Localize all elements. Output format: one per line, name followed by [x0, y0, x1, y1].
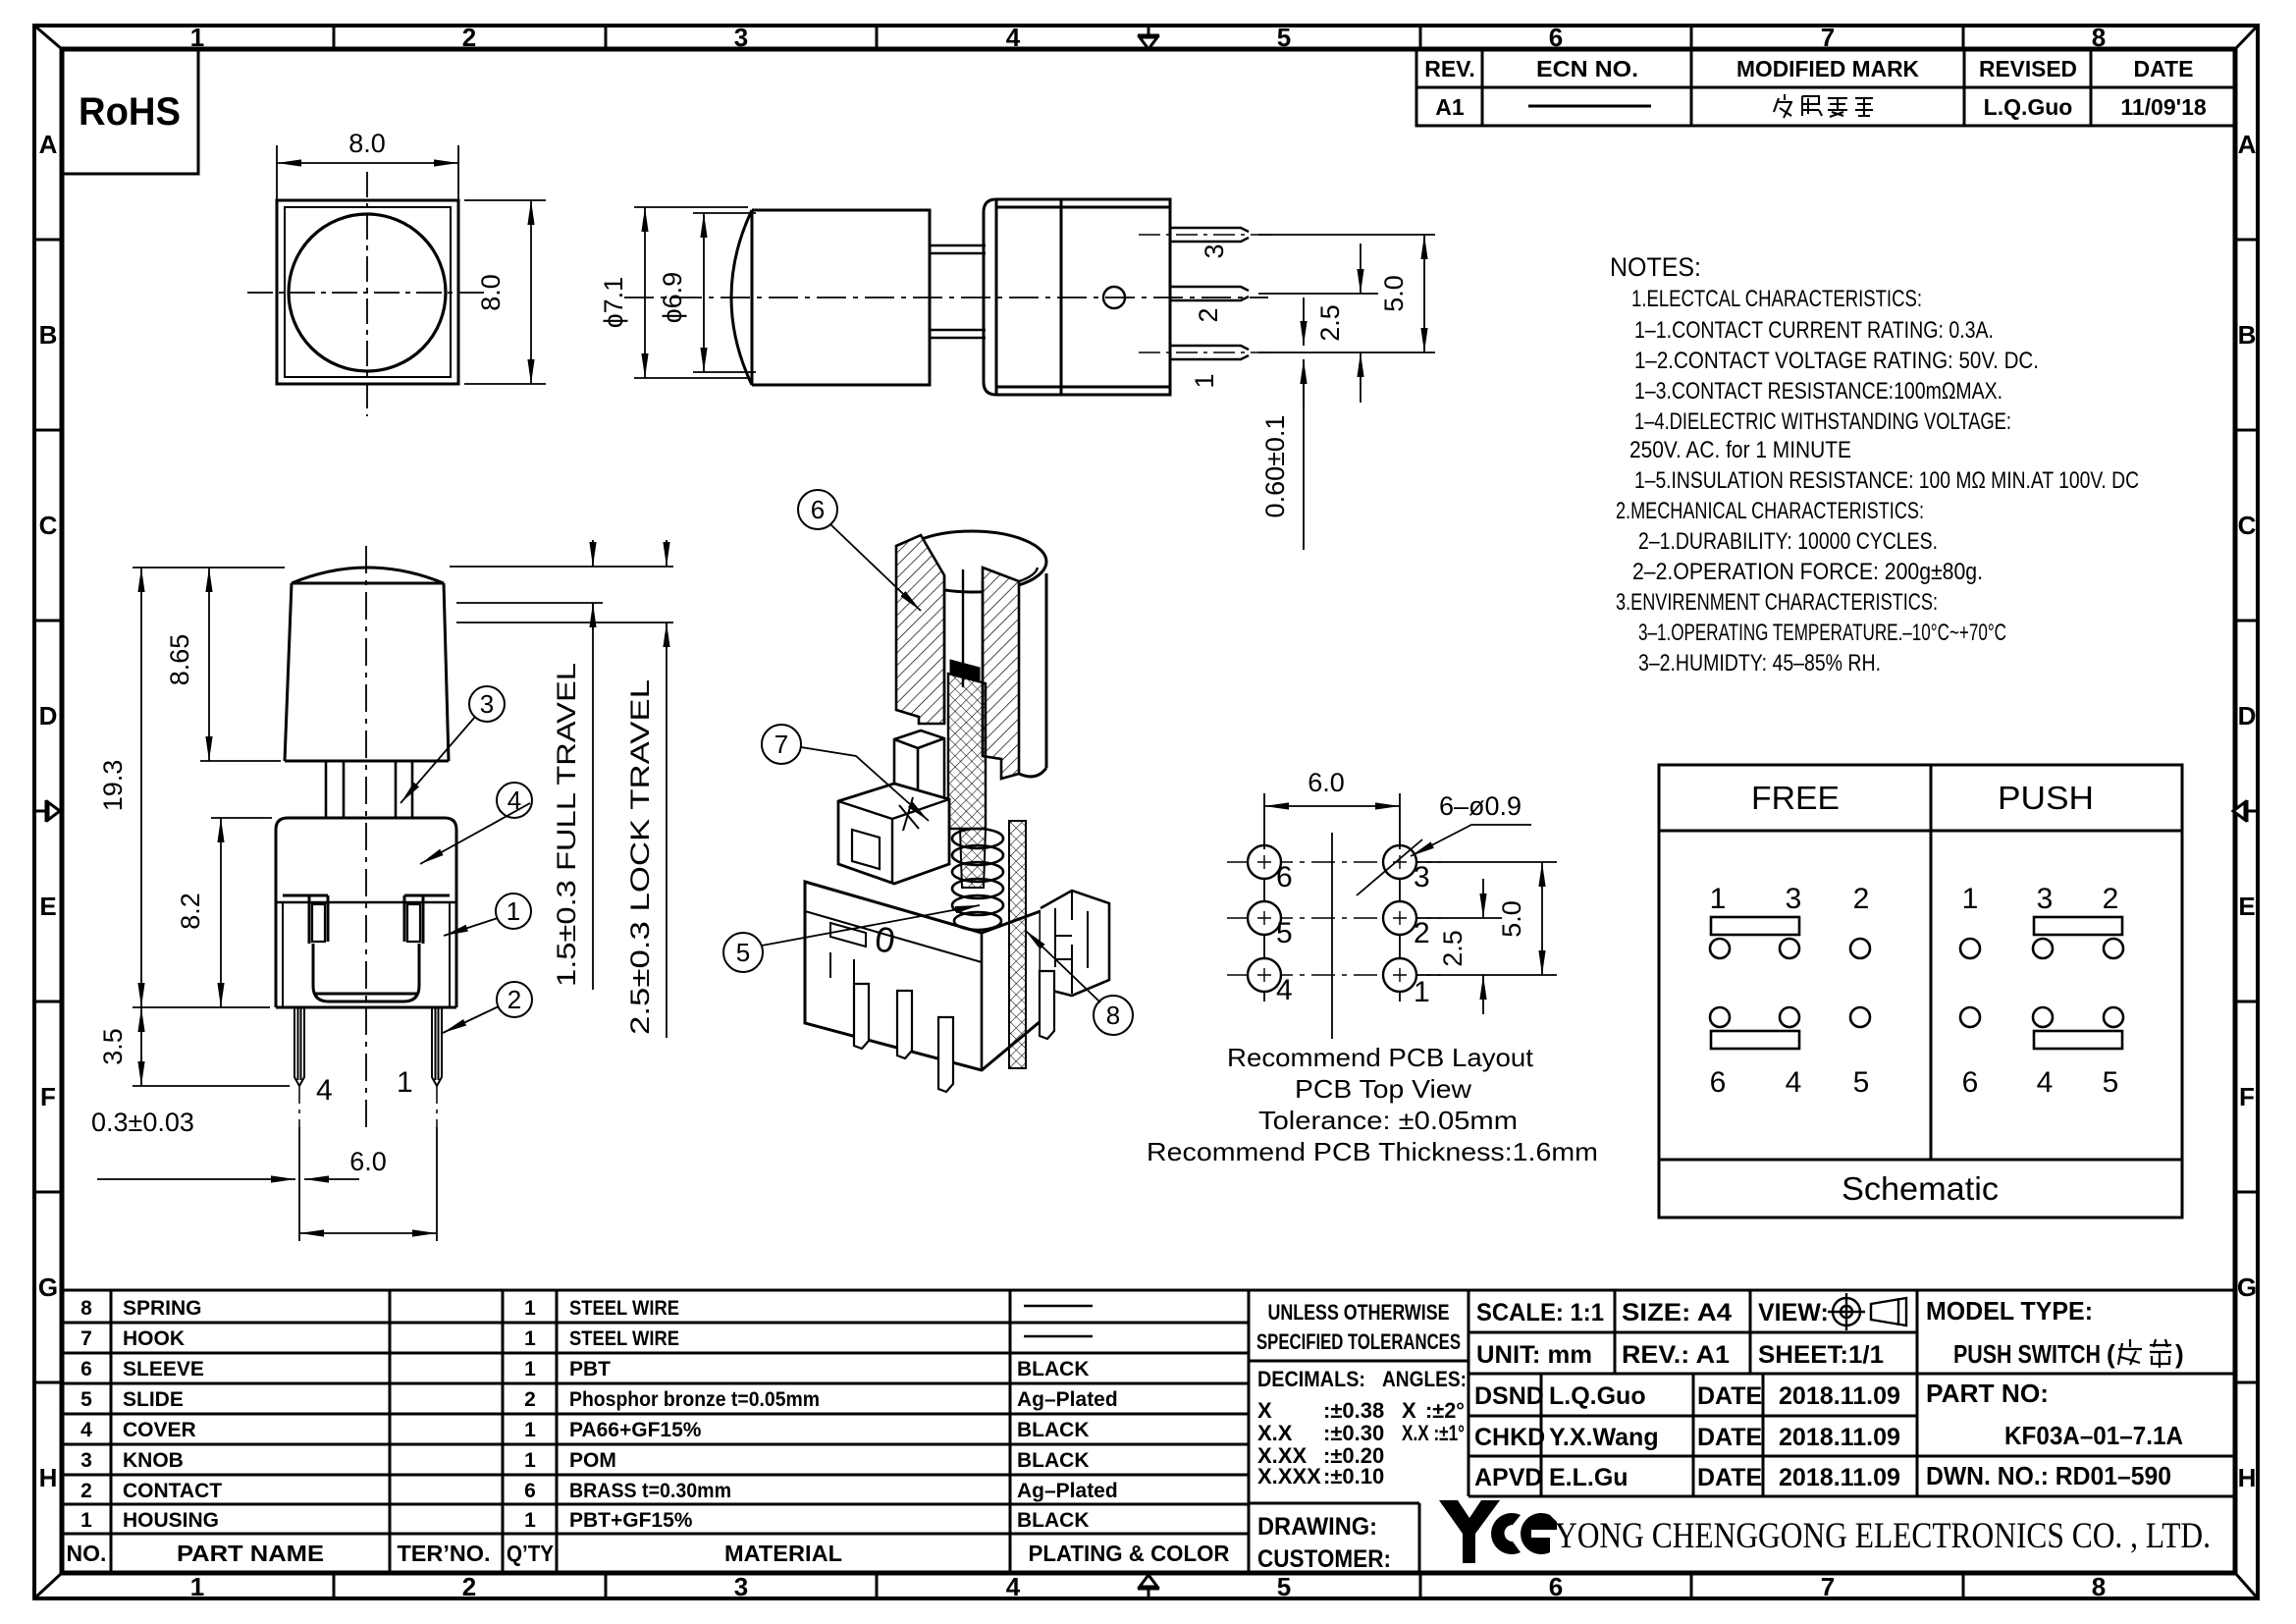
svg-text:X: X — [1257, 1398, 1272, 1423]
svg-text:3: 3 — [480, 689, 494, 719]
svg-text:X.XXX: X.XXX — [1257, 1464, 1321, 1489]
svg-text:PART NAME: PART NAME — [177, 1541, 324, 1566]
svg-text:1: 1 — [1190, 373, 1219, 388]
svg-text:Q’TY: Q’TY — [507, 1541, 554, 1566]
svg-text:4: 4 — [1006, 23, 1021, 52]
svg-text:1: 1 — [524, 1327, 536, 1350]
svg-text:RoHS: RoHS — [79, 90, 181, 134]
svg-text:3–2.HUMIDTY: 45–85% RH.: 3–2.HUMIDTY: 45–85% RH. — [1638, 650, 1881, 677]
svg-text:F: F — [2239, 1082, 2255, 1111]
svg-text:4: 4 — [1276, 974, 1293, 1006]
svg-text:COVER: COVER — [123, 1419, 196, 1441]
svg-text:SHEET:1/1: SHEET:1/1 — [1758, 1341, 1884, 1369]
svg-text:PBT+GF15%: PBT+GF15% — [569, 1509, 693, 1532]
svg-text:5: 5 — [736, 938, 750, 967]
svg-text:2.5±0.3 LOCK TRAVEL: 2.5±0.3 LOCK TRAVEL — [625, 679, 655, 1035]
svg-text:1: 1 — [397, 1066, 413, 1099]
svg-text:5: 5 — [1277, 1572, 1291, 1601]
svg-text:DWN. NO.: RD01–590: DWN. NO.: RD01–590 — [1926, 1461, 2171, 1490]
svg-text:7: 7 — [80, 1327, 92, 1350]
svg-text:KNOB: KNOB — [123, 1449, 184, 1472]
svg-text:19.3: 19.3 — [98, 760, 128, 812]
svg-text:SPECIFIED TOLERANCES: SPECIFIED TOLERANCES — [1256, 1329, 1461, 1354]
svg-text:NOTES:: NOTES: — [1610, 252, 1701, 282]
svg-text:REV.: REV. — [1424, 56, 1475, 81]
svg-text:6.0: 6.0 — [1308, 768, 1345, 797]
svg-text::±0.10: :±0.10 — [1323, 1464, 1384, 1489]
svg-text:C: C — [39, 511, 58, 540]
svg-text:KF03A–01–7.1A: KF03A–01–7.1A — [2004, 1421, 2183, 1450]
svg-text:5: 5 — [1277, 23, 1291, 52]
svg-text:1: 1 — [1962, 883, 1979, 915]
svg-text:BLACK: BLACK — [1017, 1509, 1090, 1532]
svg-text:2: 2 — [1194, 307, 1223, 322]
svg-text:1.5±0.3 FULL TRAVEL: 1.5±0.3 FULL TRAVEL — [552, 663, 581, 987]
svg-text:5.0: 5.0 — [1497, 900, 1526, 938]
svg-text:4: 4 — [80, 1419, 92, 1441]
svg-text:FREE: FREE — [1751, 780, 1840, 816]
svg-text:2.MECHANICAL CHARACTERISTICS:: 2.MECHANICAL CHARACTERISTICS: — [1616, 498, 1924, 524]
svg-text:PCB Top View: PCB Top View — [1295, 1074, 1471, 1104]
svg-text:2018.11.09: 2018.11.09 — [1779, 1382, 1900, 1410]
svg-text:1: 1 — [524, 1449, 536, 1472]
svg-text:8.0: 8.0 — [348, 129, 386, 158]
svg-text:BLACK: BLACK — [1017, 1358, 1090, 1380]
svg-text:DATE: DATE — [1697, 1382, 1762, 1410]
svg-text:2: 2 — [2103, 883, 2119, 915]
svg-text:PUSH SWITCH: PUSH SWITCH — [1953, 1339, 2101, 1369]
svg-text:1–5.INSULATION RESISTANCE: 1: 1–5.INSULATION RESISTANCE: 100 MΩ MIN.AT… — [1634, 467, 2139, 494]
svg-text:DATE: DATE — [2134, 56, 2194, 81]
svg-text:1: 1 — [1710, 883, 1727, 915]
svg-text:BLACK: BLACK — [1017, 1449, 1090, 1472]
svg-text:STEEL WIRE: STEEL WIRE — [569, 1327, 679, 1350]
svg-text:3: 3 — [734, 23, 748, 52]
svg-text:3: 3 — [80, 1449, 92, 1472]
svg-text:A1: A1 — [1435, 94, 1465, 120]
svg-text:6: 6 — [1710, 1066, 1727, 1099]
svg-text:MODEL TYPE:: MODEL TYPE: — [1926, 1296, 2093, 1326]
svg-text:CHKD: CHKD — [1474, 1424, 1545, 1451]
svg-text:E: E — [39, 892, 56, 921]
svg-text:6: 6 — [1549, 1572, 1563, 1601]
svg-text:ɸ7.1: ɸ7.1 — [599, 277, 628, 328]
svg-text:Ag–Plated: Ag–Plated — [1017, 1388, 1118, 1411]
svg-text:5: 5 — [2103, 1066, 2119, 1099]
svg-text::±2°: :±2° — [1425, 1398, 1465, 1423]
svg-text:X.X: X.X — [1257, 1421, 1293, 1445]
svg-text:3.ENVIRENMENT CHARACTERISTICS: 3.ENVIRENMENT CHARACTERISTICS: — [1616, 589, 1938, 616]
svg-text:SPRING: SPRING — [123, 1297, 202, 1320]
svg-text:TER’NO.: TER’NO. — [398, 1541, 491, 1566]
svg-text:2: 2 — [462, 23, 476, 52]
svg-text:3: 3 — [1414, 861, 1430, 893]
svg-text:4: 4 — [2037, 1066, 2054, 1099]
svg-text:SLEEVE: SLEEVE — [123, 1358, 204, 1380]
svg-text:POM: POM — [569, 1449, 616, 1472]
svg-text:5: 5 — [1276, 917, 1293, 949]
svg-text:ECN NO.: ECN NO. — [1536, 56, 1638, 81]
svg-text:2018.11.09: 2018.11.09 — [1779, 1464, 1900, 1491]
svg-text:YONG CHENGGONG ELECTRONICS: YONG CHENGGONG ELECTRONICS CO. , LTD. — [1555, 1516, 2211, 1556]
svg-text:DRAWING:: DRAWING: — [1257, 1513, 1377, 1541]
svg-text:UNLESS OTHERWISE: UNLESS OTHERWISE — [1268, 1300, 1450, 1325]
svg-text:6: 6 — [524, 1480, 536, 1502]
svg-text:2018.11.09: 2018.11.09 — [1779, 1424, 1900, 1451]
svg-text:4: 4 — [507, 785, 521, 815]
svg-text:Recommend PCB Layout: Recommend PCB Layout — [1227, 1043, 1534, 1072]
svg-text:PART NO:: PART NO: — [1926, 1379, 2049, 1408]
svg-text::±0.30: :±0.30 — [1323, 1421, 1384, 1445]
svg-text:C: C — [2238, 511, 2257, 540]
svg-text:1–2.CONTACT VOLTAGE RATING:: 1–2.CONTACT VOLTAGE RATING: 50V. DC. — [1634, 348, 2039, 374]
svg-text:L.Q.Guo: L.Q.Guo — [1984, 94, 2073, 120]
svg-text:): ) — [2175, 1339, 2184, 1369]
svg-text:8.2: 8.2 — [176, 893, 205, 930]
svg-text:PUSH: PUSH — [1998, 780, 2094, 816]
svg-text:BRASS t=0.30mm: BRASS t=0.30mm — [569, 1480, 731, 1502]
svg-text:E: E — [2238, 892, 2255, 921]
svg-text:A: A — [39, 130, 58, 159]
svg-text:B: B — [39, 320, 58, 350]
svg-text:1: 1 — [524, 1297, 536, 1320]
svg-text:H: H — [2238, 1463, 2257, 1492]
svg-text:D: D — [2238, 701, 2257, 731]
svg-text:1.ELECTCAL CHARACTERISTICS:: 1.ELECTCAL CHARACTERISTICS: — [1631, 286, 1922, 312]
svg-text:H: H — [39, 1463, 58, 1492]
svg-text::±0.38: :±0.38 — [1323, 1398, 1384, 1423]
svg-text:Schematic: Schematic — [1842, 1170, 1999, 1207]
svg-text:0.60±0.1: 0.60±0.1 — [1260, 415, 1290, 518]
svg-text:SLIDE: SLIDE — [123, 1388, 184, 1411]
svg-text:REVISED: REVISED — [1979, 56, 2077, 81]
svg-text:2.5: 2.5 — [1315, 304, 1345, 342]
svg-text:A: A — [2238, 130, 2257, 159]
svg-text:SCALE: 1:1: SCALE: 1:1 — [1476, 1299, 1604, 1326]
svg-text:3: 3 — [2037, 883, 2054, 915]
svg-text:DATE: DATE — [1697, 1424, 1762, 1451]
svg-text:5: 5 — [1853, 1066, 1870, 1099]
svg-text:5: 5 — [80, 1388, 92, 1411]
svg-text:B: B — [2238, 320, 2257, 350]
svg-text:E.L.Gu: E.L.Gu — [1549, 1464, 1629, 1491]
svg-text:8: 8 — [1106, 1001, 1120, 1030]
svg-text:DSND: DSND — [1474, 1382, 1544, 1410]
svg-text:2: 2 — [507, 985, 521, 1014]
svg-text:2: 2 — [1853, 883, 1870, 915]
svg-text:1: 1 — [524, 1419, 536, 1441]
svg-text:3–1.OPERATING TEMPERATURE.–10: 3–1.OPERATING TEMPERATURE.–10°C~+70°C — [1638, 620, 2006, 646]
svg-text:6: 6 — [1276, 861, 1293, 893]
svg-text:BLACK: BLACK — [1017, 1419, 1090, 1441]
svg-text:1: 1 — [1414, 976, 1430, 1008]
svg-text:8.65: 8.65 — [165, 634, 194, 686]
svg-text:7: 7 — [1821, 1572, 1835, 1601]
svg-text:SIZE: A4: SIZE: A4 — [1622, 1299, 1732, 1326]
svg-text:STEEL WIRE: STEEL WIRE — [569, 1297, 679, 1320]
svg-text:3: 3 — [1786, 883, 1802, 915]
svg-text:Phosphor bronze t=0.05mm: Phosphor bronze t=0.05mm — [569, 1388, 820, 1411]
svg-text:CONTACT: CONTACT — [123, 1480, 222, 1502]
svg-text:2: 2 — [462, 1572, 476, 1601]
svg-text:2: 2 — [80, 1480, 92, 1502]
svg-text:X.X :±1°: X.X :±1° — [1402, 1421, 1465, 1445]
svg-text:F: F — [40, 1082, 56, 1111]
svg-text:11/09'18: 11/09'18 — [2120, 94, 2207, 120]
svg-text:2–1.DURABILITY: 10000 CYCLES: 2–1.DURABILITY: 10000 CYCLES. — [1638, 528, 1938, 555]
svg-text:6: 6 — [80, 1358, 92, 1380]
svg-text:PBT: PBT — [569, 1358, 611, 1380]
svg-text:1–1.CONTACT CURRENT RATING:: 1–1.CONTACT CURRENT RATING: 0.3A. — [1634, 317, 1994, 344]
svg-text:G: G — [38, 1272, 58, 1302]
svg-text:Recommend PCB Thickness:1.6m: Recommend PCB Thickness:1.6mm — [1147, 1137, 1598, 1166]
svg-text:NO.: NO. — [67, 1541, 107, 1566]
svg-text:7: 7 — [774, 730, 788, 759]
svg-text:PA66+GF15%: PA66+GF15% — [569, 1419, 702, 1441]
svg-text:8: 8 — [80, 1297, 92, 1320]
svg-text:3: 3 — [1200, 244, 1229, 258]
svg-text:6: 6 — [1962, 1066, 1979, 1099]
svg-text:3.5: 3.5 — [98, 1028, 128, 1065]
svg-text:5.0: 5.0 — [1379, 275, 1409, 312]
svg-text:ɸ6.9: ɸ6.9 — [658, 272, 687, 323]
svg-text:X: X — [1402, 1398, 1416, 1423]
svg-text:MODIFIED MARK: MODIFIED MARK — [1736, 56, 1919, 81]
svg-text:Tolerance: ±0.05mm: Tolerance: ±0.05mm — [1258, 1106, 1518, 1135]
svg-text:Ag–Plated: Ag–Plated — [1017, 1480, 1118, 1502]
svg-text:8.0: 8.0 — [476, 274, 506, 311]
svg-text:HOOK: HOOK — [123, 1327, 185, 1350]
svg-text:3: 3 — [734, 1572, 748, 1601]
svg-text:4: 4 — [316, 1074, 333, 1107]
svg-text:REV.: A1: REV.: A1 — [1622, 1341, 1730, 1369]
svg-text:1: 1 — [507, 896, 520, 926]
svg-text:250V. AC. for 1 MINUTE: 250V. AC. for 1 MINUTE — [1629, 437, 1851, 463]
svg-text:1: 1 — [524, 1509, 536, 1532]
svg-text:6: 6 — [811, 495, 825, 524]
svg-text:Y.X.Wang: Y.X.Wang — [1549, 1424, 1659, 1451]
svg-text:1: 1 — [524, 1358, 536, 1380]
svg-text:4: 4 — [1786, 1066, 1802, 1099]
svg-text:1: 1 — [80, 1509, 92, 1532]
svg-text:4: 4 — [1006, 1572, 1021, 1601]
svg-text:1–3.CONTACT RESISTANCE:100mΩM: 1–3.CONTACT RESISTANCE:100mΩMAX. — [1634, 378, 2002, 405]
svg-text:G: G — [2237, 1272, 2257, 1302]
svg-text:APVD: APVD — [1474, 1464, 1542, 1491]
svg-text:2.5: 2.5 — [1438, 930, 1468, 967]
svg-text:D: D — [39, 701, 58, 731]
svg-text:6–ø0.9: 6–ø0.9 — [1439, 791, 1522, 821]
svg-text:MATERIAL: MATERIAL — [724, 1541, 842, 1566]
svg-text:1: 1 — [190, 1572, 204, 1601]
svg-text:6.0: 6.0 — [349, 1147, 387, 1176]
svg-text:(: ( — [2107, 1339, 2115, 1369]
svg-text:2: 2 — [524, 1388, 536, 1411]
svg-text:2–2.OPERATION FORCE: 200g±80g: 2–2.OPERATION FORCE: 200g±80g. — [1632, 559, 1983, 585]
svg-text:CUSTOMER:: CUSTOMER: — [1257, 1545, 1391, 1573]
svg-text:HOUSING: HOUSING — [123, 1509, 219, 1532]
svg-text:ANGLES:: ANGLES: — [1382, 1367, 1467, 1391]
svg-text:2: 2 — [1414, 917, 1430, 949]
svg-text:VIEW:: VIEW: — [1758, 1299, 1829, 1326]
svg-text:UNIT: mm: UNIT: mm — [1476, 1341, 1592, 1369]
svg-text:1–4.DIELECTRIC WITHSTANDING: 1–4.DIELECTRIC WITHSTANDING VOLTAGE: — [1634, 408, 2011, 435]
svg-text:0.3±0.03: 0.3±0.03 — [91, 1108, 194, 1137]
svg-text:8: 8 — [2092, 1572, 2106, 1601]
svg-text:PLATING & COLOR: PLATING & COLOR — [1029, 1541, 1230, 1566]
svg-text:DATE: DATE — [1697, 1464, 1762, 1491]
svg-text:DECIMALS:: DECIMALS: — [1257, 1367, 1365, 1391]
svg-text:L.Q.Guo: L.Q.Guo — [1549, 1382, 1646, 1410]
